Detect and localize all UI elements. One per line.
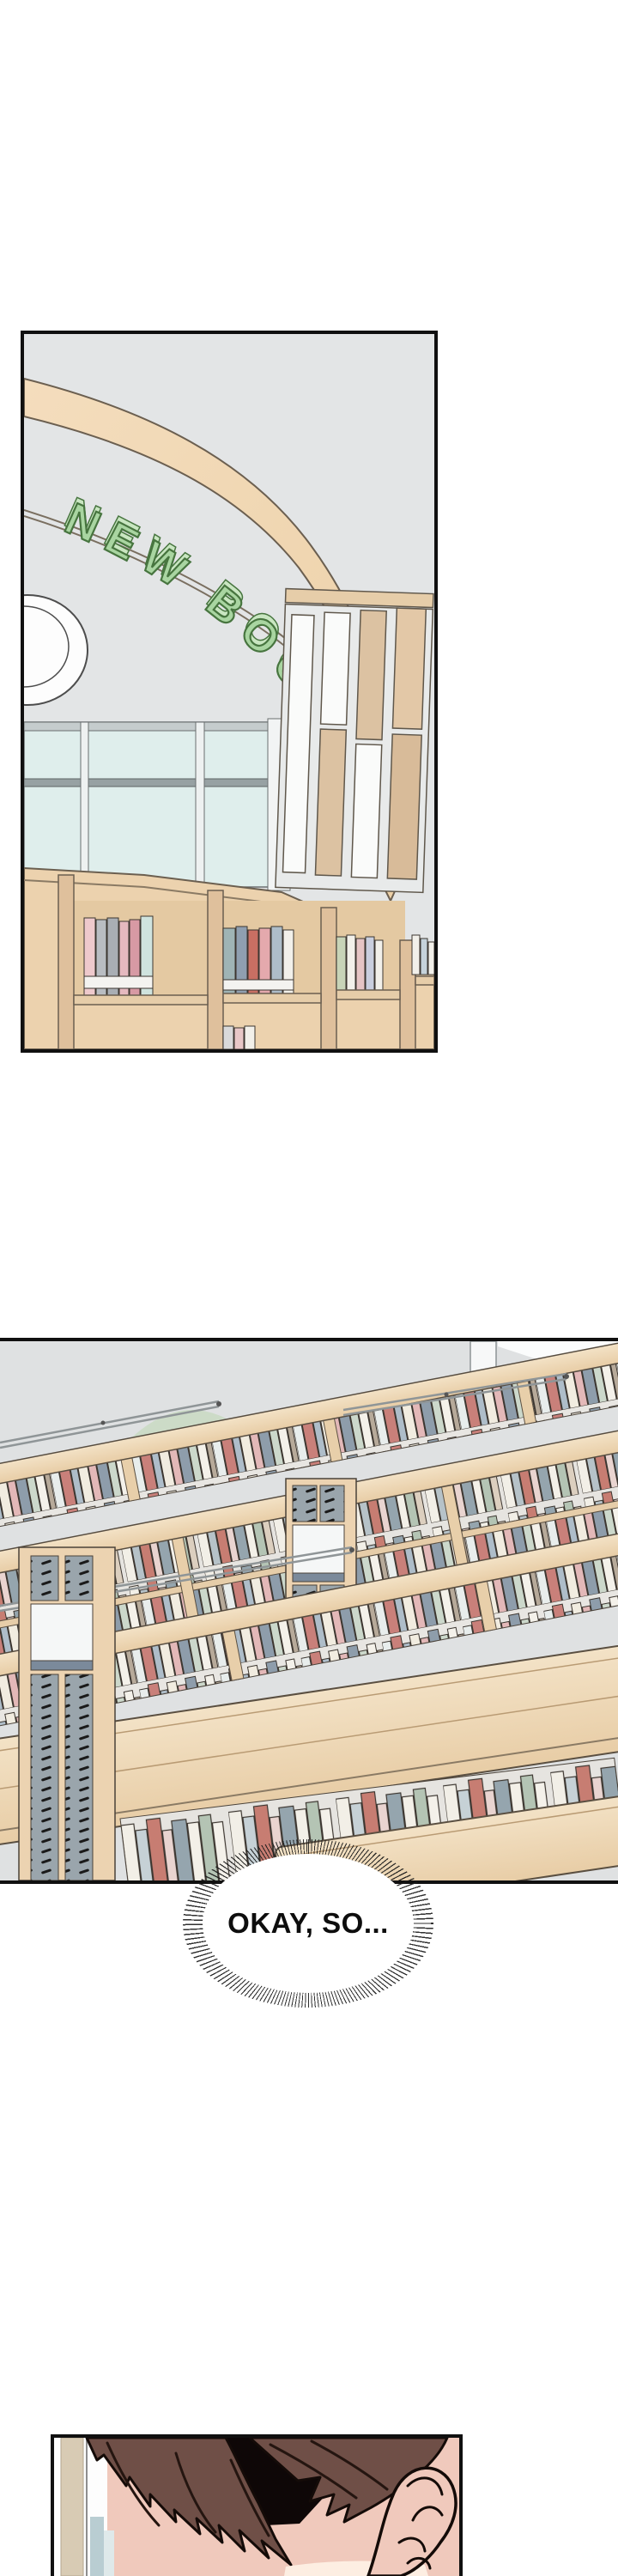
books-bay2 bbox=[223, 927, 294, 997]
books-bay1 bbox=[84, 916, 153, 997]
speech-bubble-text: OKAY, SO... bbox=[227, 1907, 389, 1940]
panel2-art bbox=[0, 1341, 618, 1880]
lattice-wall bbox=[276, 589, 433, 893]
speech-bubble-body: OKAY, SO... bbox=[203, 1854, 414, 1993]
panel1-art: NEW BOOK NEW BOOK bbox=[24, 334, 434, 1049]
window-band bbox=[24, 719, 307, 890]
panel-library-stacks bbox=[0, 1338, 618, 1884]
panel-head-closeup bbox=[51, 2434, 463, 2576]
speech-bubble: OKAY, SO... bbox=[183, 1839, 433, 2008]
comic-page: NEW BOOK NEW BOOK bbox=[0, 0, 618, 2576]
panel-library-entrance: NEW BOOK NEW BOOK bbox=[21, 331, 438, 1053]
panel3-art bbox=[54, 2438, 459, 2576]
books-bay3 bbox=[336, 935, 383, 993]
end-panel-left bbox=[19, 1547, 115, 1880]
